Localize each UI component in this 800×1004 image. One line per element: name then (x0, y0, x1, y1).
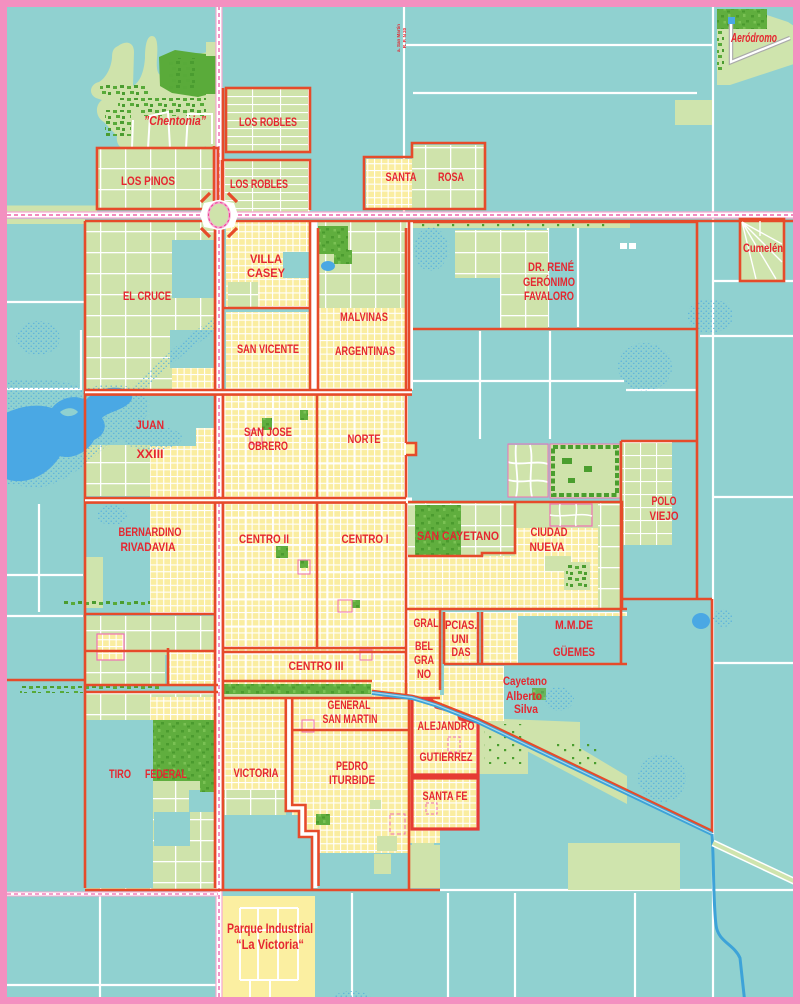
svg-text:VICTORIA: VICTORIA (234, 766, 279, 780)
svg-text:NORTE: NORTE (348, 432, 381, 446)
svg-text:SAN MARTIN: SAN MARTIN (323, 712, 378, 726)
svg-text:GUTIERREZ: GUTIERREZ (420, 750, 473, 764)
svg-text:JUAN: JUAN (136, 418, 164, 432)
svg-text:BEL: BEL (415, 639, 433, 653)
svg-text:CENTRO I: CENTRO I (342, 532, 389, 546)
svg-text:BERNARDINO: BERNARDINO (119, 525, 182, 539)
svg-text:M.M.DE: M.M.DE (555, 618, 593, 632)
svg-text:GRAL: GRAL (414, 616, 439, 630)
svg-text:R. P. N 20: R. P. N 20 (402, 27, 407, 48)
svg-text:FAVALORO: FAVALORO (524, 289, 574, 303)
svg-text:Silva: Silva (514, 702, 538, 716)
svg-text:RIVADAVIA: RIVADAVIA (121, 540, 176, 554)
svg-text:CENTRO III: CENTRO III (289, 659, 344, 673)
svg-text:UNI: UNI (452, 632, 469, 646)
svg-text:Parque Industrial: Parque Industrial (227, 921, 313, 936)
svg-text:LOS ROBLES: LOS ROBLES (230, 177, 288, 191)
svg-text:Cumelén: Cumelén (743, 243, 783, 255)
svg-text:VILLA: VILLA (250, 252, 282, 266)
svg-text:“La Victoria“: “La Victoria“ (236, 937, 304, 952)
svg-text:GÜEMES: GÜEMES (553, 644, 595, 659)
svg-text:SANTA FE: SANTA FE (423, 789, 468, 803)
svg-text:GENERAL: GENERAL (328, 698, 371, 712)
svg-text:VIEJO: VIEJO (650, 509, 679, 523)
svg-text:GRA: GRA (414, 653, 434, 667)
svg-text:XXIII: XXIII (137, 447, 164, 461)
svg-text:PEDRO: PEDRO (336, 759, 368, 773)
svg-text:PCIAS.: PCIAS. (445, 618, 477, 632)
svg-text:CENTRO II: CENTRO II (239, 532, 289, 546)
svg-text:LOS PINOS: LOS PINOS (121, 174, 175, 188)
svg-text:ROSA: ROSA (438, 170, 464, 184)
svg-text:POLO: POLO (652, 494, 677, 508)
svg-text:LOS ROBLES: LOS ROBLES (239, 115, 297, 129)
svg-text:MALVINAS: MALVINAS (340, 310, 388, 324)
svg-text:DR. RENÉ: DR. RENÉ (528, 259, 574, 274)
svg-text:ARGENTINAS: ARGENTINAS (335, 344, 395, 358)
svg-text:”Chentonia”: ”Chentonia” (144, 113, 206, 128)
svg-text:SAN VICENTE: SAN VICENTE (237, 342, 299, 356)
svg-text:Alberto: Alberto (506, 689, 542, 703)
svg-text:NO: NO (417, 667, 431, 681)
svg-text:a. San Martin: a. San Martin (396, 24, 401, 52)
svg-text:CASEY: CASEY (247, 266, 285, 280)
svg-text:FEDERAL: FEDERAL (145, 767, 187, 781)
svg-text:OBRERO: OBRERO (248, 439, 288, 453)
svg-text:NUEVA: NUEVA (530, 540, 565, 554)
svg-text:TIRO: TIRO (109, 767, 131, 781)
svg-text:GERÓNIMO: GERÓNIMO (523, 274, 575, 289)
svg-text:Cayetano: Cayetano (503, 674, 547, 688)
svg-text:DAS: DAS (452, 645, 471, 659)
svg-text:SAN CAYETANO: SAN CAYETANO (417, 529, 499, 543)
svg-text:ITURBIDE: ITURBIDE (329, 773, 375, 787)
svg-text:EL CRUCE: EL CRUCE (123, 289, 171, 303)
svg-text:CIUDAD: CIUDAD (531, 525, 568, 539)
svg-text:ALEJANDRO: ALEJANDRO (418, 719, 475, 733)
svg-text:Aeródromo: Aeródromo (730, 31, 777, 45)
svg-text:SANTA: SANTA (386, 170, 417, 184)
svg-text:SAN JOSE: SAN JOSE (244, 425, 292, 439)
